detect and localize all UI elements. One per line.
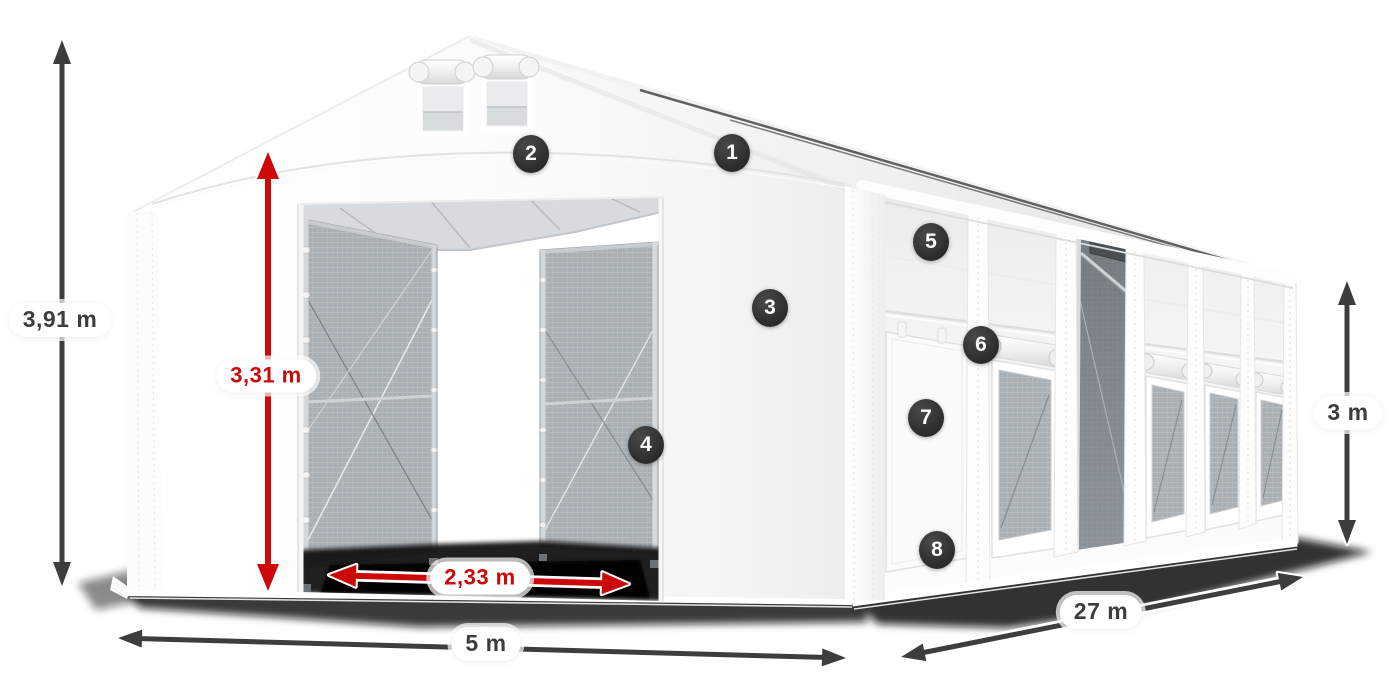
dimension-label-door-height: 3,31 m bbox=[216, 360, 316, 393]
feature-marker-1: 1 bbox=[714, 134, 750, 172]
feature-marker-3: 3 bbox=[752, 289, 788, 327]
dimension-label-side-height: 3 m bbox=[1313, 396, 1382, 430]
dimension-label-front-width: 5 m bbox=[451, 627, 520, 661]
feature-marker-8: 8 bbox=[919, 531, 955, 569]
dimension-label-total-height: 3,91 m bbox=[9, 303, 112, 337]
feature-marker-6: 6 bbox=[963, 326, 999, 364]
feature-marker-2: 2 bbox=[513, 135, 549, 173]
dimension-label-side-length: 27 m bbox=[1060, 595, 1142, 629]
feature-marker-7: 7 bbox=[908, 399, 944, 437]
feature-marker-5: 5 bbox=[913, 223, 949, 261]
tent-dimension-diagram: 3,91 m 3,31 m 2,33 m 5 m 27 m 3 m 1 2 3 … bbox=[0, 0, 1400, 700]
dimension-arrows bbox=[0, 0, 1400, 700]
dimension-label-door-width: 2,33 m bbox=[430, 562, 530, 595]
feature-marker-4: 4 bbox=[628, 426, 664, 464]
